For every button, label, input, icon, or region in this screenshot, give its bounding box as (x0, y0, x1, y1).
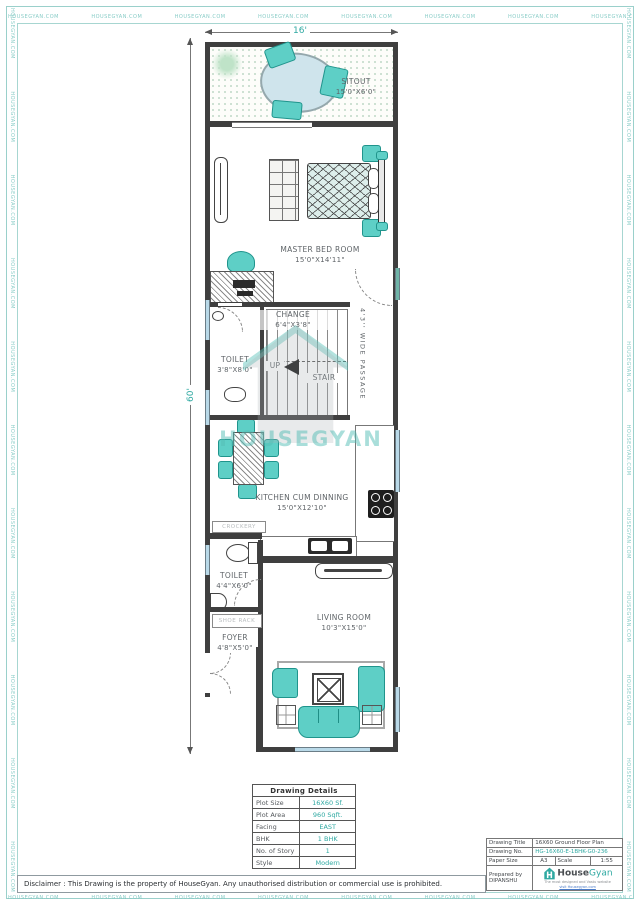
table-row: No. of Story 1 (253, 845, 356, 857)
crockery-text: CROCKERY (222, 524, 256, 530)
computer-icon (233, 280, 255, 288)
prepared-by-value: DIPANSHU (489, 878, 517, 884)
window (395, 687, 400, 732)
detail-label: Plot Area (253, 809, 300, 821)
housegyan-logo-icon (543, 867, 556, 880)
door-opening (218, 303, 242, 306)
wc-bowl (226, 544, 250, 562)
sink-bowl (311, 541, 327, 551)
burner (371, 506, 380, 515)
detail-value: 1 (300, 845, 356, 857)
wall (256, 647, 262, 747)
sofa-seam (318, 709, 319, 723)
passage-label: 4'3'' WIDE PASSAGE (358, 297, 366, 412)
wall (210, 533, 262, 539)
study-desk (210, 271, 274, 304)
logo-tagline: The most designed and Vastu website visi… (535, 880, 620, 889)
table-row: Facing EAST (253, 821, 356, 833)
keyboard-icon (237, 291, 253, 296)
window (205, 300, 210, 340)
table-x-pattern (317, 678, 341, 702)
detail-value: 16X60 Sf. (300, 797, 356, 809)
sliding-door (232, 122, 312, 128)
headboard (378, 157, 385, 225)
room-name: SITOUT (341, 77, 370, 86)
sofa-seam (338, 709, 339, 723)
table-row: Paper Size A3 Scale 1:55 (487, 857, 623, 866)
plant-icon (212, 49, 242, 79)
wc-tank (248, 542, 258, 564)
wall (260, 556, 393, 563)
border-tape-left: HOUSEGYAN.COM HOUSEGYAN.COM HOUSEGYAN.CO… (8, 8, 16, 897)
corner-table (276, 705, 296, 725)
window (395, 430, 400, 492)
table-row: Plot Size 16X60 Sf. (253, 797, 356, 809)
paper-size-value: A3 (533, 857, 555, 866)
burner (383, 493, 392, 502)
crockery-label: CROCKERY (212, 521, 266, 533)
toilet-lower-label: TOILET 4'4"X6'0" (211, 571, 257, 591)
burner (383, 506, 392, 515)
table-row: Drawing No. HG-16X60-E-1BHK-G0-236 (487, 848, 623, 857)
window (205, 545, 210, 575)
wall (210, 607, 262, 612)
room-size: 4'8"X5'0" (217, 644, 253, 652)
main-door-swing (210, 673, 231, 694)
dining-chair (218, 461, 233, 479)
dim-arrow-top (187, 38, 193, 45)
paper-size-label: Paper Size (487, 857, 533, 866)
master-bed-label: MASTER BED ROOM 15'0"X14'11" (265, 245, 375, 265)
ventilator (395, 268, 400, 300)
watermark-text: HOUSEGYAN (212, 427, 390, 451)
room-size: 15'0"X12'10" (277, 504, 327, 512)
shoe-rack-text: SHOE RACK (219, 618, 255, 624)
kitchen-sink (308, 538, 352, 554)
border-tape-top: HOUSEGYAN.COM HOUSEGYAN.COM HOUSEGYAN.CO… (8, 13, 632, 21)
room-name: TOILET (220, 571, 248, 580)
drawing-title-value: 16X60 Ground Floor Plan (533, 839, 623, 848)
drawing-no-value: HG-16X60-E-1BHK-G0-236 (533, 848, 623, 857)
sitout-label: SITOUT 15'0"X6'0" (318, 77, 394, 97)
drawing-title-label: Drawing Title (487, 839, 533, 848)
detail-value: Modern (300, 857, 356, 869)
three-seater-sofa (298, 706, 360, 738)
mirror-line (220, 163, 221, 215)
room-size: 10'3"X15'0" (321, 624, 366, 632)
room-name: FOYER (222, 633, 248, 642)
prepared-by-cell: Prepared by DIPANSHU (487, 866, 533, 891)
room-name: KITCHEN CUM DINNING (255, 493, 348, 502)
logo-cell: HouseGyan The most designed and Vastu we… (533, 866, 623, 891)
shoe-rack-label: SHOE RACK (212, 614, 262, 628)
dim-arrow-right (391, 29, 398, 35)
gas-stove (368, 490, 394, 518)
detail-label: No. of Story (253, 845, 300, 857)
desk-chair (227, 251, 255, 273)
foyer-label: FOYER 4'8"X5'0" (211, 633, 259, 653)
corner-table (362, 705, 382, 725)
detail-value: 1 BHK (300, 833, 356, 845)
room-size: 15'0"X14'11" (295, 256, 345, 264)
table-row: BHK 1 BHK (253, 833, 356, 845)
dresser-mirror (214, 157, 228, 223)
wc-icon (224, 387, 246, 402)
burner (371, 493, 380, 502)
dim-width-label: 16' (290, 26, 310, 36)
details-title: Drawing Details (253, 785, 356, 797)
room-name: LIVING ROOM (317, 613, 371, 622)
table-row: Prepared by DIPANSHU HouseGyan The most … (487, 866, 623, 891)
detail-label: BHK (253, 833, 300, 845)
kitchen-label: KITCHEN CUM DINNING 15'0"X12'10" (248, 493, 356, 513)
brand-house: House (557, 869, 589, 879)
title-block: Drawing Title 16X60 Ground Floor Plan Dr… (486, 838, 623, 891)
table-row: Drawing Title 16X60 Ground Floor Plan (487, 839, 623, 848)
drawing-no-label: Drawing No. (487, 848, 533, 857)
dining-chair (264, 461, 279, 479)
border-tape-right: HOUSEGYAN.COM HOUSEGYAN.COM HOUSEGYAN.CO… (624, 8, 632, 897)
dim-height-label: 60' (186, 385, 196, 405)
room-name: CHANGE (276, 310, 310, 319)
brand-name: HouseGyan (557, 869, 612, 879)
headboard-post (376, 151, 388, 160)
tv-unit (315, 563, 393, 579)
detail-label: Style (253, 857, 300, 869)
room-size: 15'0"X6'0" (336, 88, 376, 96)
disclaimer-bar: Disclaimer : This Drawing is the propert… (17, 875, 486, 893)
drawing-details-table: Drawing Details Plot Size 16X60 Sf. Plot… (252, 784, 356, 869)
living-label: LIVING ROOM 10'3"X15'0" (290, 613, 398, 633)
scale-label: Scale (555, 857, 591, 866)
sink-bowl (332, 541, 348, 551)
room-name: MASTER BED ROOM (280, 245, 359, 254)
wardrobe (269, 159, 299, 221)
main-door-swing (210, 653, 231, 674)
scale-value: 1:55 (591, 857, 623, 866)
floor-plan-sheet: HOUSEGYAN.COM HOUSEGYAN.COM HOUSEGYAN.CO… (0, 0, 640, 905)
dim-arrow-left (205, 29, 212, 35)
table-row: Style Modern (253, 857, 356, 869)
border-tape-bottom: HOUSEGYAN.COM HOUSEGYAN.COM HOUSEGYAN.CO… (8, 894, 632, 902)
door-swing (218, 307, 243, 332)
disclaimer-text: Disclaimer : This Drawing is the propert… (24, 880, 442, 888)
window (205, 390, 210, 425)
sitout-chair (271, 100, 302, 121)
headboard-post (376, 222, 388, 231)
detail-label: Facing (253, 821, 300, 833)
center-table (312, 673, 344, 705)
single-sofa (272, 668, 298, 698)
tv-line (324, 569, 382, 572)
room-size: 4'4"X6'0" (216, 582, 252, 590)
tagline-line2: visit Housegyan.com (559, 885, 596, 889)
passage-text: 4'3'' WIDE PASSAGE (358, 308, 366, 400)
plan-notch (204, 697, 256, 757)
dim-arrow-bottom (187, 747, 193, 754)
window (295, 747, 370, 752)
detail-value: 960 Sqft. (300, 809, 356, 821)
table-row: Plot Area 960 Sqft. (253, 809, 356, 821)
tagline-line1: The most designed and Vastu website (544, 880, 611, 884)
detail-label: Plot Size (253, 797, 300, 809)
bed-quilt (307, 163, 371, 219)
detail-value: EAST (300, 821, 356, 833)
brand-gyan: Gyan (589, 869, 613, 879)
